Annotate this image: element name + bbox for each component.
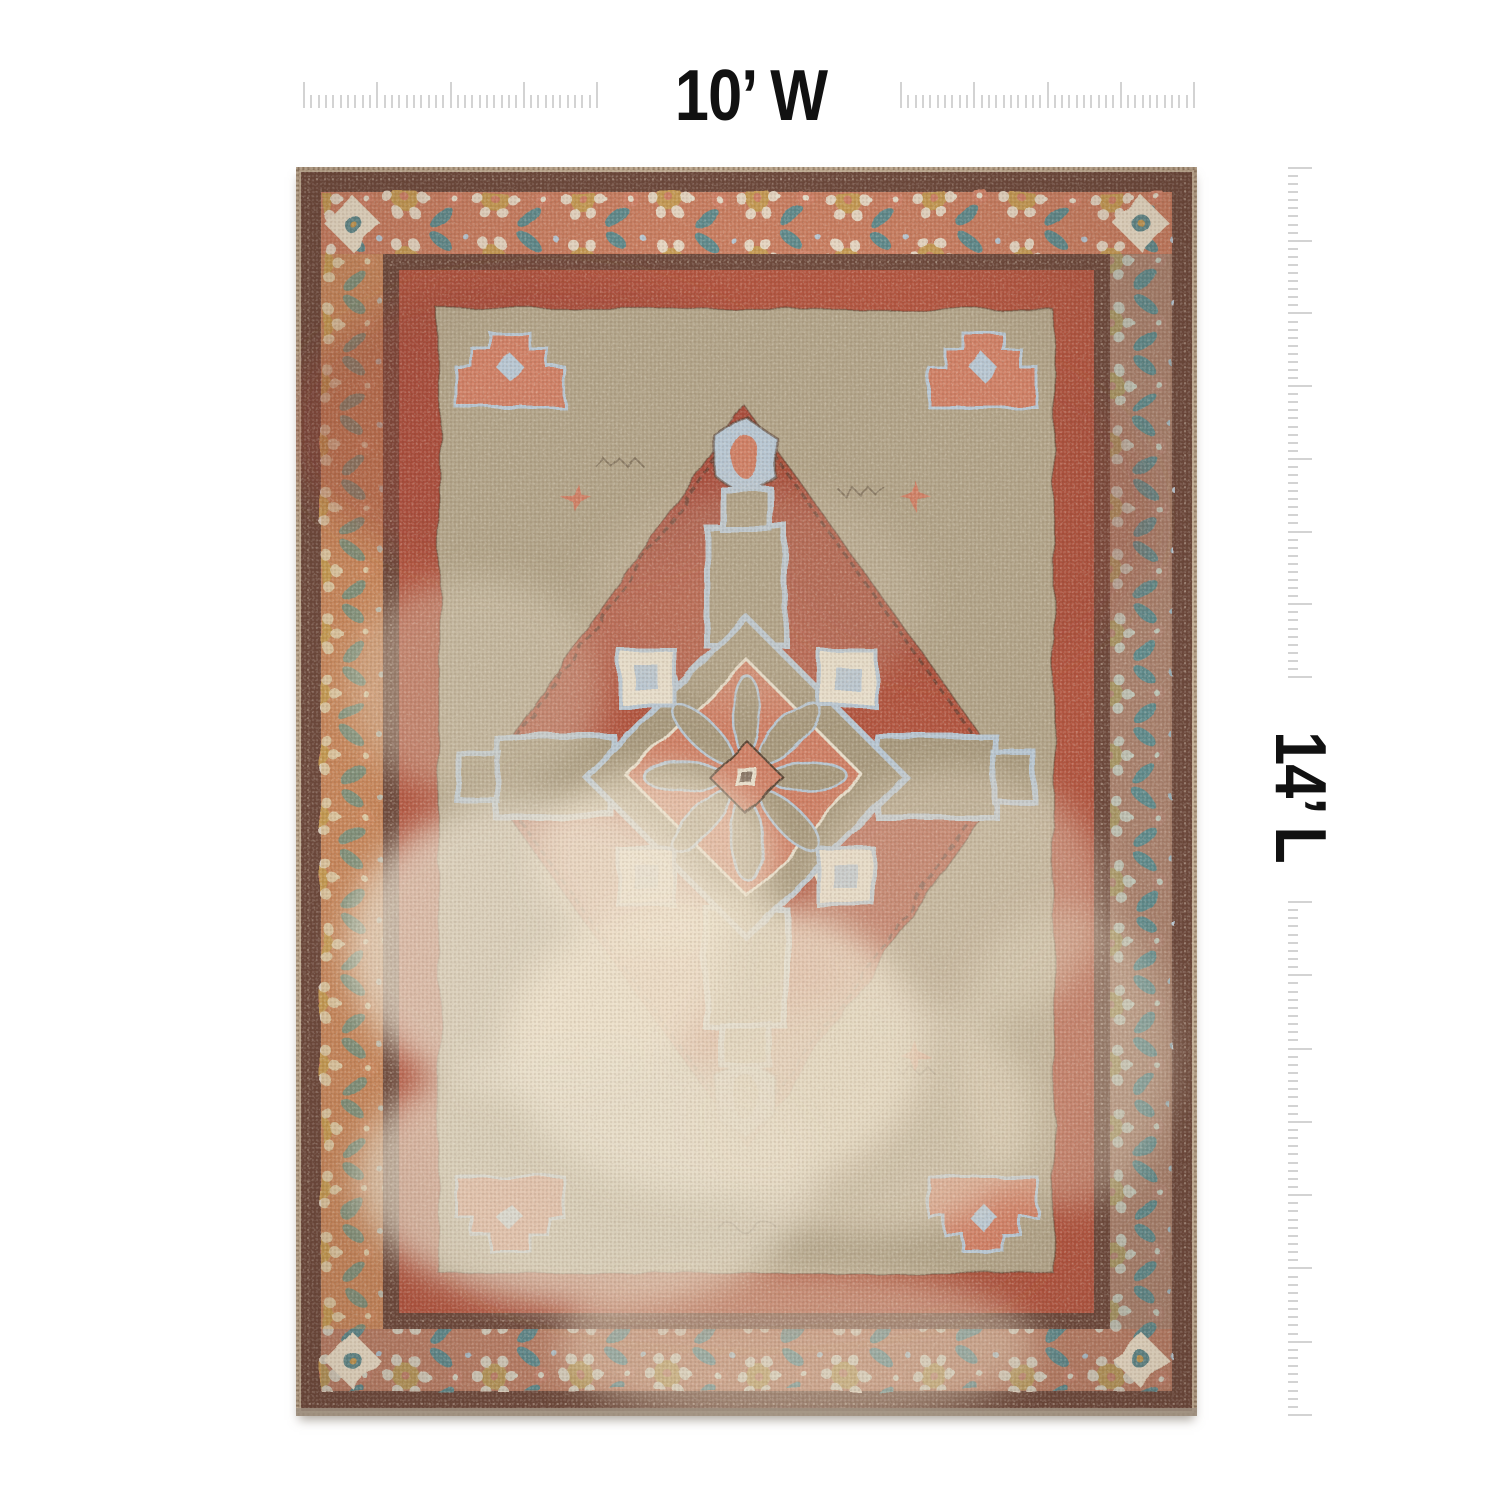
ruler-tick xyxy=(545,95,547,108)
ruler-tick xyxy=(559,95,561,108)
top-ruler-left-segment xyxy=(304,82,597,108)
ruler-tick xyxy=(1193,82,1195,108)
ruler-tick xyxy=(1288,539,1298,541)
ruler-tick xyxy=(1076,95,1078,108)
ruler-tick xyxy=(1039,95,1041,108)
ruler-tick xyxy=(1288,1292,1298,1294)
ruler-tick xyxy=(1288,1088,1298,1090)
ruler-tick xyxy=(1061,95,1063,108)
ruler-tick xyxy=(1010,95,1012,108)
ruler-tick xyxy=(973,82,975,108)
ruler-tick xyxy=(1288,1064,1298,1066)
ruler-tick xyxy=(1288,991,1298,993)
ruler-tick xyxy=(1288,1227,1298,1229)
ruler-tick xyxy=(1288,183,1298,185)
ruler-tick xyxy=(981,95,983,108)
ruler-tick xyxy=(1288,450,1298,452)
ruler-tick xyxy=(1288,167,1312,169)
ruler-tick xyxy=(1127,95,1129,108)
ruler-tick xyxy=(1156,95,1158,108)
ruler-tick xyxy=(318,95,320,108)
ruler-tick xyxy=(944,95,946,108)
ruler-tick xyxy=(1186,95,1188,108)
ruler-tick xyxy=(1134,95,1136,108)
ruler-tick xyxy=(1178,95,1180,108)
ruler-tick xyxy=(442,95,444,108)
ruler-tick xyxy=(596,82,598,108)
ruler-tick xyxy=(1288,563,1298,565)
ruler-tick xyxy=(1288,296,1298,298)
ruler-tick xyxy=(376,82,378,108)
ruler-tick xyxy=(1288,321,1298,323)
ruler-tick xyxy=(1288,1219,1298,1221)
ruler-tick xyxy=(1288,652,1298,654)
ruler-tick xyxy=(1288,1153,1298,1155)
ruler-tick xyxy=(1288,426,1298,428)
ruler-tick xyxy=(1288,925,1298,927)
ruler-tick xyxy=(340,95,342,108)
top-ruler-right-segment xyxy=(901,82,1194,108)
ruler-tick xyxy=(1288,417,1298,419)
ruler-tick xyxy=(1288,1373,1298,1375)
ruler-tick xyxy=(1288,1072,1298,1074)
ruler-tick xyxy=(1288,361,1298,363)
ruler-tick xyxy=(1288,1080,1298,1082)
ruler-tick xyxy=(1288,1267,1312,1269)
rug-product-image xyxy=(296,167,1197,1416)
ruler-tick xyxy=(1288,434,1298,436)
ruler-tick xyxy=(450,82,452,108)
ruler-tick xyxy=(1288,522,1298,524)
ruler-tick xyxy=(937,95,939,108)
ruler-tick xyxy=(1288,611,1298,613)
ruler-tick xyxy=(332,95,334,108)
rug-art xyxy=(296,167,1197,1416)
ruler-tick xyxy=(435,95,437,108)
ruler-tick xyxy=(1105,95,1107,108)
ruler-tick xyxy=(1288,215,1298,217)
ruler-tick xyxy=(1288,999,1298,1001)
ruler-tick xyxy=(1017,95,1019,108)
ruler-tick xyxy=(1288,660,1298,662)
ruler-tick xyxy=(1288,312,1312,314)
ruler-tick xyxy=(428,95,430,108)
ruler-tick xyxy=(574,95,576,108)
ruler-tick xyxy=(1288,1096,1298,1098)
ruler-tick xyxy=(1288,288,1298,290)
ruler-tick xyxy=(406,95,408,108)
ruler-tick xyxy=(515,95,517,108)
ruler-tick xyxy=(1288,191,1298,193)
ruler-tick xyxy=(1288,1259,1298,1261)
ruler-tick xyxy=(1288,1113,1298,1115)
ruler-tick xyxy=(1288,1243,1298,1245)
ruler-tick xyxy=(1288,1316,1298,1318)
ruler-tick xyxy=(922,95,924,108)
ruler-tick xyxy=(1288,353,1298,355)
ruler-tick xyxy=(501,95,503,108)
ruler-tick xyxy=(413,95,415,108)
ruler-tick xyxy=(1288,329,1298,331)
ruler-tick xyxy=(1288,458,1312,460)
ruler-tick xyxy=(1288,1235,1298,1237)
ruler-tick xyxy=(1288,1031,1298,1033)
ruler-tick xyxy=(523,82,525,108)
ruler-tick xyxy=(1288,1341,1312,1343)
ruler-tick xyxy=(1288,280,1298,282)
ruler-tick xyxy=(1288,619,1298,621)
ruler-tick xyxy=(1288,232,1298,234)
ruler-tick xyxy=(1288,224,1298,226)
ruler-tick xyxy=(1288,498,1298,500)
ruler-tick xyxy=(1288,466,1298,468)
ruler-tick xyxy=(1288,1202,1298,1204)
ruler-tick xyxy=(1032,95,1034,108)
ruler-tick xyxy=(915,95,917,108)
ruler-tick xyxy=(1054,95,1056,108)
ruler-tick xyxy=(1288,1251,1298,1253)
ruler-tick xyxy=(1288,256,1298,258)
ruler-tick xyxy=(1288,345,1298,347)
ruler-tick xyxy=(1288,942,1298,944)
ruler-tick xyxy=(1142,95,1144,108)
ruler-tick xyxy=(1288,385,1312,387)
ruler-tick xyxy=(1288,644,1298,646)
ruler-tick xyxy=(464,95,466,108)
ruler-tick xyxy=(1288,1129,1298,1131)
ruler-tick xyxy=(1288,547,1298,549)
ruler-tick xyxy=(1288,337,1298,339)
ruler-tick xyxy=(1288,1137,1298,1139)
ruler-tick xyxy=(354,95,356,108)
ruler-tick xyxy=(1288,1170,1298,1172)
ruler-tick xyxy=(398,95,400,108)
ruler-tick xyxy=(1288,555,1298,557)
ruler-tick xyxy=(1288,603,1312,605)
length-dimension-label: 14’ L xyxy=(1259,731,1341,863)
ruler-tick xyxy=(384,95,386,108)
ruler-tick xyxy=(1288,1210,1298,1212)
ruler-tick xyxy=(589,95,591,108)
product-dimension-page: 10’ W 14’ L xyxy=(0,0,1500,1500)
ruler-tick xyxy=(1288,1390,1298,1392)
ruler-tick xyxy=(1288,1023,1298,1025)
width-dimension-label: 10’ W xyxy=(675,55,827,137)
ruler-tick xyxy=(1288,1121,1312,1123)
ruler-tick xyxy=(1288,950,1298,952)
ruler-tick xyxy=(966,95,968,108)
ruler-tick xyxy=(567,95,569,108)
ruler-tick xyxy=(347,95,349,108)
ruler-tick xyxy=(1288,401,1298,403)
ruler-tick xyxy=(1288,958,1298,960)
ruler-tick xyxy=(1288,917,1298,919)
ruler-tick xyxy=(1288,974,1312,976)
ruler-tick xyxy=(1288,909,1298,911)
ruler-tick xyxy=(900,82,902,108)
ruler-tick xyxy=(1288,1365,1298,1367)
ruler-tick xyxy=(1047,82,1049,108)
ruler-tick xyxy=(907,95,909,108)
ruler-tick xyxy=(391,95,393,108)
ruler-tick xyxy=(1288,369,1298,371)
right-ruler-bottom-segment xyxy=(1288,902,1312,1415)
ruler-tick xyxy=(1288,1194,1312,1196)
ruler-tick xyxy=(1120,82,1122,108)
ruler-tick xyxy=(951,95,953,108)
ruler-tick xyxy=(1288,264,1298,266)
ruler-tick xyxy=(1288,1414,1312,1416)
ruler-tick xyxy=(1288,442,1298,444)
ruler-tick xyxy=(537,95,539,108)
ruler-tick xyxy=(1288,1284,1298,1286)
ruler-tick xyxy=(457,95,459,108)
ruler-tick xyxy=(1288,304,1298,306)
ruler-tick xyxy=(486,95,488,108)
ruler-tick xyxy=(1171,95,1173,108)
ruler-tick xyxy=(1003,95,1005,108)
ruler-tick xyxy=(1288,982,1298,984)
ruler-tick xyxy=(1288,676,1312,678)
ruler-tick xyxy=(1288,240,1312,242)
ruler-tick xyxy=(1288,1276,1298,1278)
ruler-tick xyxy=(1288,490,1298,492)
ruler-tick xyxy=(1288,636,1298,638)
ruler-tick xyxy=(1288,272,1298,274)
ruler-tick xyxy=(1288,1056,1298,1058)
ruler-tick xyxy=(1288,1178,1298,1180)
ruler-tick xyxy=(1288,1105,1298,1107)
ruler-tick xyxy=(420,95,422,108)
ruler-tick xyxy=(1288,628,1298,630)
ruler-tick xyxy=(1288,934,1298,936)
ruler-tick xyxy=(1288,1406,1298,1408)
ruler-tick xyxy=(988,95,990,108)
ruler-tick xyxy=(303,82,305,108)
ruler-tick xyxy=(1288,248,1298,250)
ruler-tick xyxy=(1149,95,1151,108)
ruler-tick xyxy=(1288,531,1312,533)
ruler-tick xyxy=(552,95,554,108)
ruler-tick xyxy=(1288,514,1298,516)
ruler-tick xyxy=(1288,409,1298,411)
ruler-tick xyxy=(1288,1349,1298,1351)
ruler-tick xyxy=(1288,393,1298,395)
ruler-tick xyxy=(530,95,532,108)
ruler-tick xyxy=(1288,966,1298,968)
ruler-tick xyxy=(1288,901,1312,903)
ruler-tick xyxy=(1090,95,1092,108)
ruler-tick xyxy=(1288,482,1298,484)
ruler-tick xyxy=(493,95,495,108)
ruler-tick xyxy=(1288,587,1298,589)
ruler-tick xyxy=(1098,95,1100,108)
right-ruler-top-segment xyxy=(1288,168,1312,677)
ruler-tick xyxy=(1288,377,1298,379)
ruler-tick xyxy=(1164,95,1166,108)
ruler-tick xyxy=(508,95,510,108)
ruler-tick xyxy=(1288,199,1298,201)
ruler-tick xyxy=(1288,1048,1312,1050)
ruler-tick xyxy=(1288,668,1298,670)
ruler-tick xyxy=(1288,1381,1298,1383)
ruler-tick xyxy=(1288,1324,1298,1326)
ruler-tick xyxy=(1288,1333,1298,1335)
ruler-tick xyxy=(1112,95,1114,108)
ruler-tick xyxy=(1288,1300,1298,1302)
ruler-tick xyxy=(1288,1007,1298,1009)
ruler-tick xyxy=(471,95,473,108)
ruler-tick xyxy=(929,95,931,108)
ruler-tick xyxy=(369,95,371,108)
ruler-tick xyxy=(1288,1039,1298,1041)
ruler-tick xyxy=(1288,1308,1298,1310)
ruler-tick xyxy=(1288,1398,1298,1400)
ruler-tick xyxy=(362,95,364,108)
ruler-tick xyxy=(1288,474,1298,476)
ruler-tick xyxy=(1025,95,1027,108)
ruler-tick xyxy=(1288,1015,1298,1017)
ruler-tick xyxy=(1288,571,1298,573)
ruler-tick xyxy=(1288,1162,1298,1164)
ruler-tick xyxy=(1288,506,1298,508)
ruler-tick xyxy=(581,95,583,108)
ruler-tick xyxy=(310,95,312,108)
ruler-tick xyxy=(1068,95,1070,108)
ruler-tick xyxy=(1288,175,1298,177)
ruler-tick xyxy=(479,95,481,108)
ruler-tick xyxy=(1288,579,1298,581)
ruler-tick xyxy=(1288,1186,1298,1188)
ruler-tick xyxy=(1083,95,1085,108)
ruler-tick xyxy=(959,95,961,108)
ruler-tick xyxy=(995,95,997,108)
ruler-tick xyxy=(325,95,327,108)
ruler-tick xyxy=(1288,207,1298,209)
ruler-tick xyxy=(1288,595,1298,597)
ruler-tick xyxy=(1288,1145,1298,1147)
ruler-tick xyxy=(1288,1357,1298,1359)
